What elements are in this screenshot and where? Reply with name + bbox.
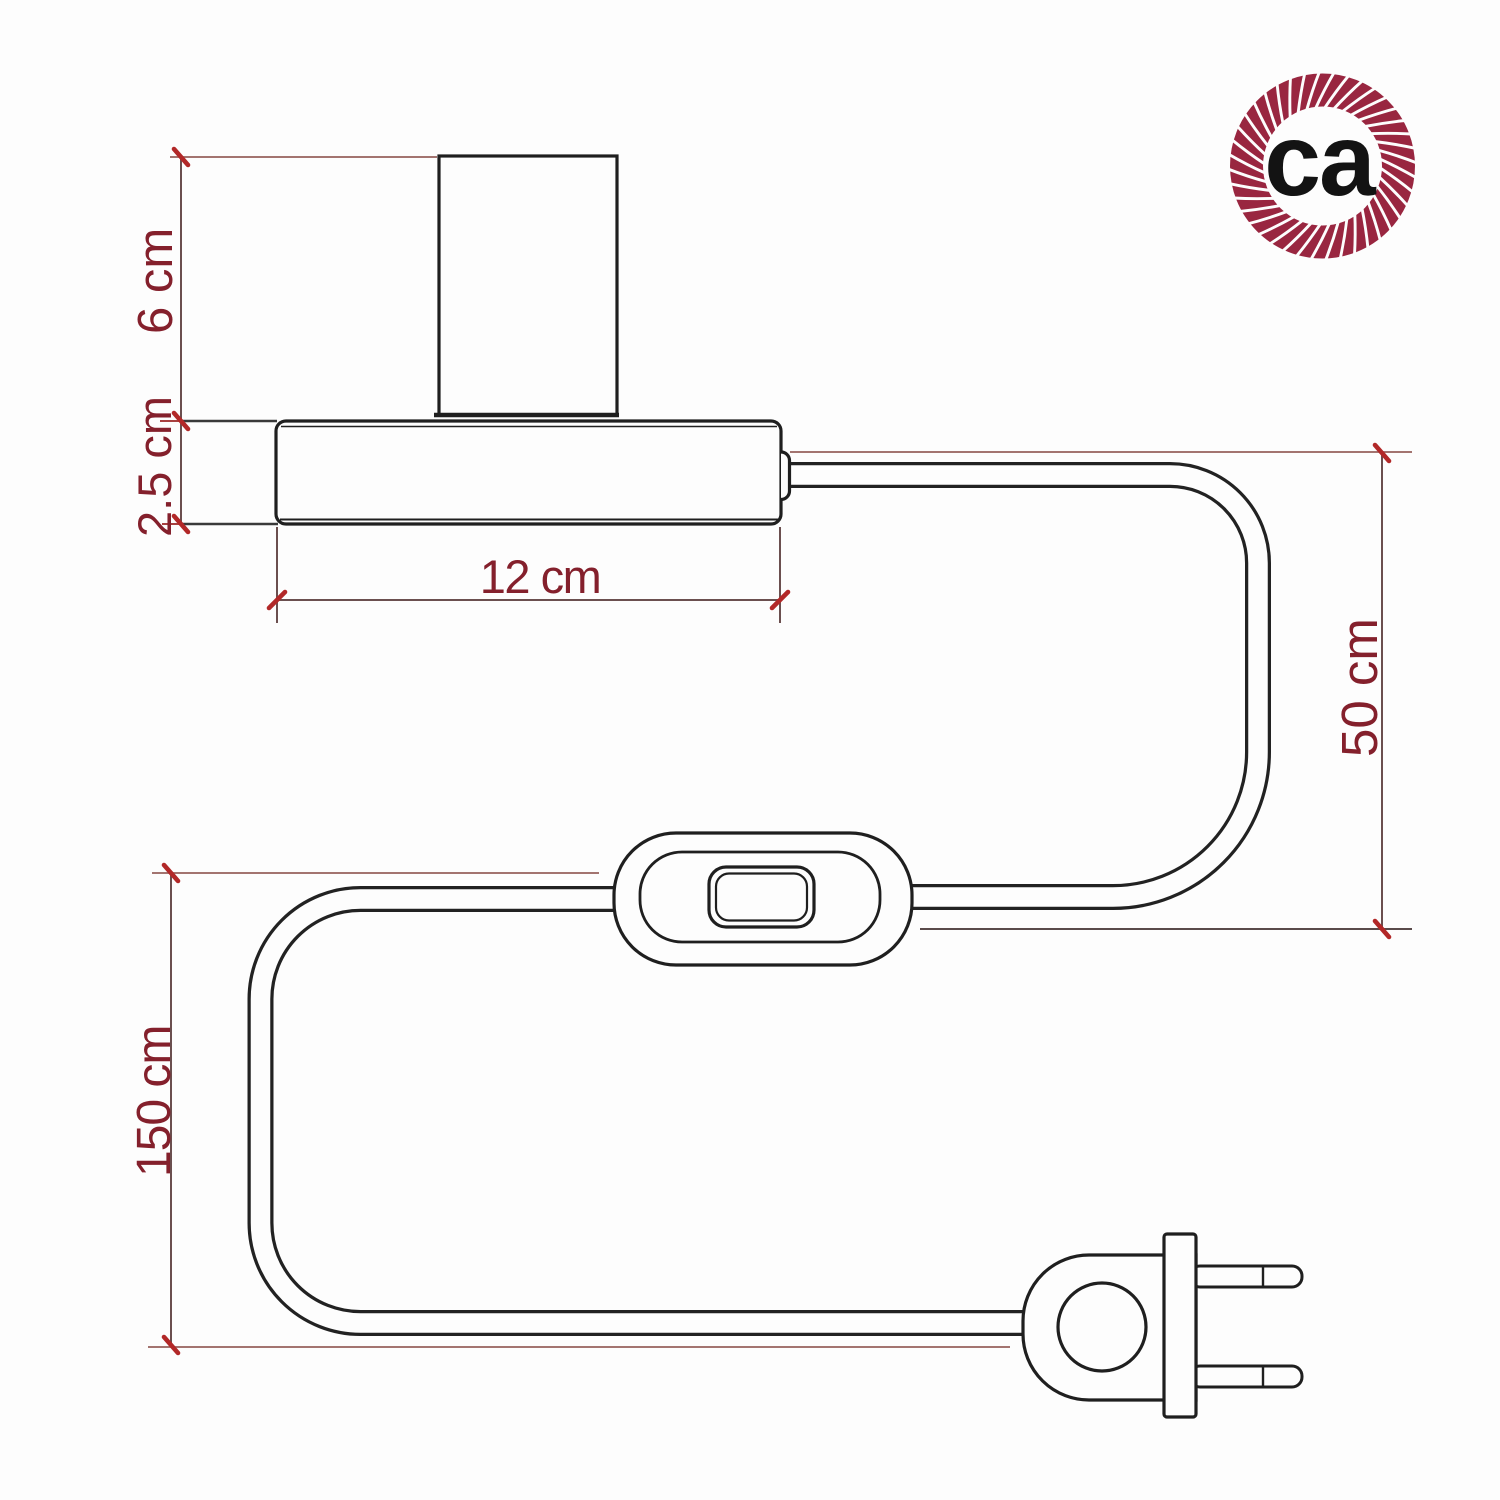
svg-text:150 cm: 150 cm xyxy=(128,1026,181,1177)
svg-text:ca: ca xyxy=(1264,103,1377,217)
svg-text:12 cm: 12 cm xyxy=(480,550,601,603)
svg-text:2.5 cm: 2.5 cm xyxy=(128,396,181,537)
svg-text:6 cm: 6 cm xyxy=(129,228,183,334)
svg-text:50 cm: 50 cm xyxy=(1331,618,1388,757)
